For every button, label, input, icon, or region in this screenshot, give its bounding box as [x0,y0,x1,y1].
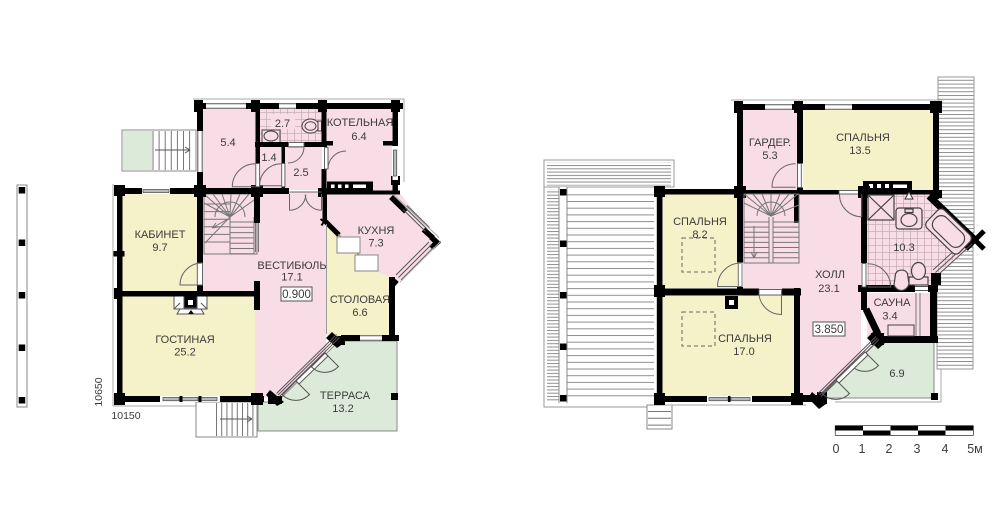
svg-text:КАБИНЕТ: КАБИНЕТ [135,229,186,241]
svg-text:8.2: 8.2 [692,229,707,241]
svg-text:КОТЕЛЬНАЯ: КОТЕЛЬНАЯ [327,117,394,129]
svg-text:7.3: 7.3 [368,238,383,250]
svg-text:СТОЛОВАЯ: СТОЛОВАЯ [330,294,390,306]
svg-text:3.850: 3.850 [815,324,844,336]
svg-text:9.7: 9.7 [152,242,167,254]
svg-text:ГОСТИНАЯ: ГОСТИНАЯ [155,334,214,346]
svg-text:5.4: 5.4 [220,137,235,149]
svg-text:23.1: 23.1 [818,283,839,295]
svg-text:17.0: 17.0 [733,346,754,358]
svg-text:СПАЛЬНЯ: СПАЛЬНЯ [718,333,772,345]
svg-text:ГАРДЕР.: ГАРДЕР. [749,137,791,149]
svg-text:СПАЛЬНЯ: СПАЛЬНЯ [836,132,890,144]
svg-text:6.6: 6.6 [352,307,367,319]
svg-text:СПАЛЬНЯ: СПАЛЬНЯ [673,216,727,228]
svg-text:ВЕСТИБЮЛЬ: ВЕСТИБЮЛЬ [257,260,326,272]
svg-text:ТЕРРАСА: ТЕРРАСА [320,390,371,402]
svg-text:13.2: 13.2 [332,403,353,415]
svg-text:2.7: 2.7 [275,118,290,130]
svg-text:3: 3 [914,442,921,456]
svg-text:10.3: 10.3 [893,242,914,254]
svg-text:2.5: 2.5 [293,167,308,179]
svg-text:13.5: 13.5 [849,145,870,157]
svg-text:1: 1 [859,442,866,456]
svg-text:0: 0 [833,442,840,456]
svg-text:10650: 10650 [93,377,105,406]
svg-text:1.4: 1.4 [261,152,276,164]
svg-text:3.4: 3.4 [882,311,897,323]
svg-text:ХОЛЛ: ХОЛЛ [815,269,845,281]
svg-text:10150: 10150 [111,410,140,422]
svg-text:25.2: 25.2 [174,347,195,359]
svg-text:6.9: 6.9 [889,368,904,380]
svg-text:5.3: 5.3 [762,150,777,162]
svg-text:17.1: 17.1 [281,272,302,284]
svg-text:6.4: 6.4 [351,131,366,143]
svg-text:САУНА: САУНА [874,297,911,309]
svg-text:2: 2 [886,442,893,456]
svg-text:КУХНЯ: КУХНЯ [358,225,395,237]
svg-text:4: 4 [942,442,949,456]
svg-text:5м: 5м [967,442,983,456]
svg-text:0.900: 0.900 [282,289,311,301]
